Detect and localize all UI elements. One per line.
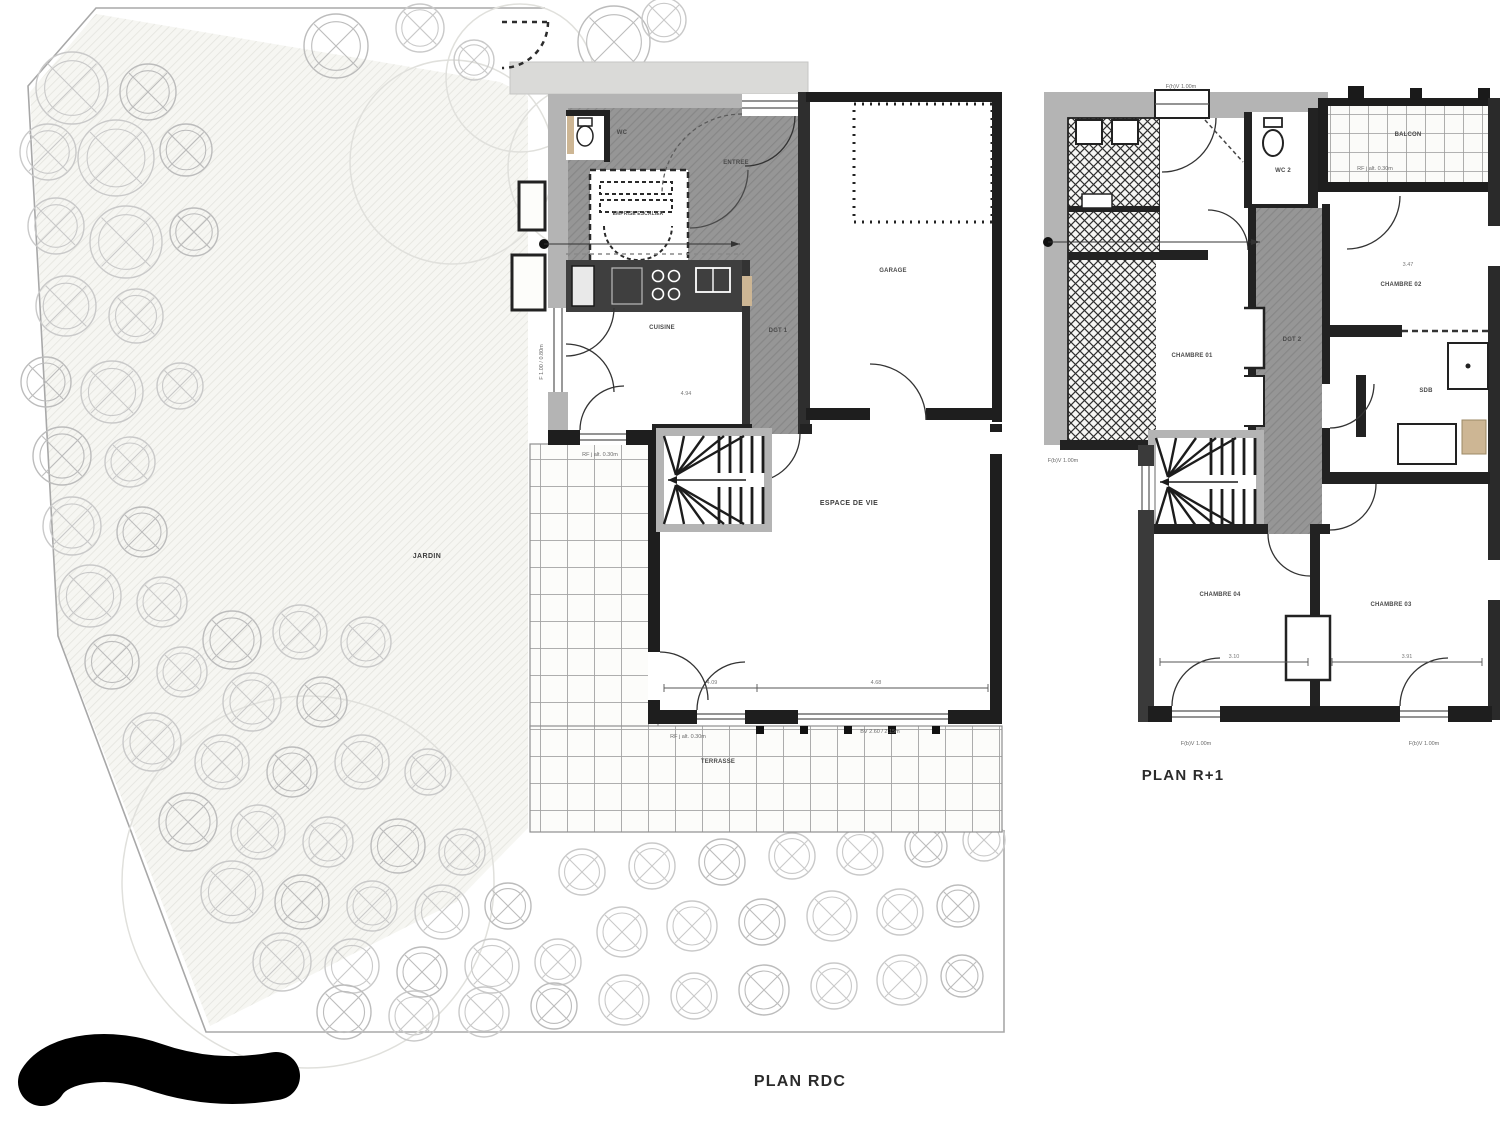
door-leaf: [567, 116, 574, 154]
wall: [1318, 98, 1328, 190]
room-label-balcon: BALCON: [1395, 132, 1422, 138]
door-opening: [1322, 384, 1330, 428]
rdc-plan: [502, 22, 1002, 832]
wall: [1322, 325, 1402, 337]
r1-plan: [1043, 86, 1500, 722]
room-label-espace: ESPACE DE VIE: [820, 500, 878, 507]
wall: [1318, 98, 1500, 106]
door-opening: [648, 652, 660, 700]
dgt2-floor: [1256, 208, 1322, 534]
site-plan-page: WC ENTREE EMPRISE ESCALIER CUISINE DGT 1…: [0, 0, 1500, 1124]
dim-ch04: 3.10: [1229, 654, 1240, 660]
annotation-top-window: F(h)V 1.00m: [1166, 84, 1197, 90]
chambre01-room: [1156, 260, 1244, 440]
window-opening: [548, 308, 570, 392]
window-opening: [1488, 226, 1500, 266]
garage-room: [810, 102, 992, 408]
wall: [926, 408, 1002, 420]
room-label-wc: WC: [617, 130, 628, 136]
terrace-tiles: [530, 726, 1002, 832]
bay-window-opening: [798, 710, 948, 724]
room-label-garage: GARAGE: [879, 268, 907, 274]
window-opening: [1138, 466, 1154, 510]
wall: [1318, 182, 1500, 192]
plan-title-rdc: PLAN RDC: [754, 1073, 846, 1090]
landing: [1160, 118, 1244, 252]
wall: [798, 92, 810, 434]
window-opening: [1488, 560, 1500, 600]
room-label-emprise: EMPRISE ESCALIER: [613, 211, 664, 217]
driveway-band: [510, 62, 808, 94]
door-opening: [580, 430, 626, 445]
fridge-icon: [572, 266, 594, 306]
wall: [1356, 375, 1366, 437]
terrace-tiles-left: [530, 444, 658, 728]
rooflight: [1082, 194, 1112, 208]
room-label-chambre01: CHAMBRE 01: [1171, 353, 1212, 359]
wall: [1322, 472, 1490, 484]
dim-cuisine: 4.94: [681, 391, 692, 397]
roof-crosshatch: [1068, 118, 1160, 445]
annotation-left-window: F(b)V 1.00m: [1048, 458, 1079, 464]
sdb-room: [1330, 337, 1488, 477]
wall: [1308, 108, 1318, 208]
garden-lawn-hatch: [30, 14, 528, 1026]
room-label-wc2: WC 2: [1275, 168, 1291, 174]
room-label-terrasse: TERRASSE: [701, 759, 735, 765]
window-opening: [990, 432, 1002, 454]
planter: [519, 182, 545, 230]
planter: [512, 255, 545, 310]
balcony-tiles: [1328, 106, 1500, 182]
room-label-cuisine: CUISINE: [649, 325, 675, 331]
wall: [1044, 92, 1068, 445]
room-label-chambre04: CHAMBRE 04: [1199, 592, 1240, 598]
room-label-chambre02: CHAMBRE 02: [1380, 282, 1421, 288]
room-label-dgt1: DGT 1: [769, 328, 788, 334]
window-opening: [1172, 706, 1220, 722]
wall: [806, 408, 870, 420]
room-label-chambre03: CHAMBRE 03: [1370, 602, 1411, 608]
wall: [990, 424, 1002, 724]
annotation-terrace-left: RF j alt. 0.30m: [582, 452, 618, 458]
annotation-bay: BV 2.60 / 2.15m: [860, 729, 900, 735]
room-label-sdb: SDB: [1419, 388, 1433, 394]
kitchen-counter: [566, 254, 744, 312]
window-opening: [1400, 706, 1448, 722]
wall: [1160, 250, 1208, 260]
chambre02-room: [1328, 192, 1496, 325]
dim-espace-a: 4.09: [707, 680, 718, 686]
annotation-left-door: F 1.00 / 0.80m: [539, 344, 545, 380]
front-door-opening: [742, 94, 798, 116]
wall: [1244, 112, 1252, 208]
annotation-window-ch04: F(b)V 1.00m: [1181, 741, 1212, 747]
room-label-entree: ENTREE: [723, 160, 749, 166]
annotation-balcony-level: RF j alt. 0.30m: [1357, 166, 1393, 172]
wall: [992, 92, 1002, 422]
balcony-post: [1348, 86, 1364, 100]
annotation-window-ch03: F(b)V 1.00m: [1409, 741, 1440, 747]
dim-espace-b: 4.68: [871, 680, 882, 686]
closet: [1286, 616, 1330, 680]
rooflight: [1076, 120, 1102, 144]
dim-ch02: 3.47: [1403, 262, 1414, 268]
wall: [604, 110, 610, 162]
plan-title-r1: PLAN R+1: [1142, 767, 1225, 784]
annotation-terrace: RF j alt. 0.30m: [670, 734, 706, 740]
door-leaf: [742, 276, 752, 306]
site-plan-drawing: WC ENTREE EMPRISE ESCALIER CUISINE DGT 1…: [0, 0, 1500, 1124]
room-label-jardin: JARDIN: [413, 553, 441, 560]
balcony-post: [1410, 88, 1422, 100]
chambre03-room: [1330, 484, 1488, 706]
wall: [566, 110, 610, 116]
wall: [800, 424, 812, 434]
marker-scribble: [42, 1058, 276, 1082]
wall: [806, 92, 1002, 102]
dim-ch03: 3.91: [1402, 654, 1413, 660]
wall: [1488, 98, 1500, 720]
door-leaf: [1462, 420, 1486, 454]
room-label-dgt2: DGT 2: [1283, 337, 1302, 343]
door-opening: [1322, 484, 1330, 530]
gate-swing-arc: [502, 22, 548, 68]
rooflight: [1112, 120, 1138, 144]
wall: [1148, 524, 1268, 534]
window-opening: [697, 710, 745, 724]
